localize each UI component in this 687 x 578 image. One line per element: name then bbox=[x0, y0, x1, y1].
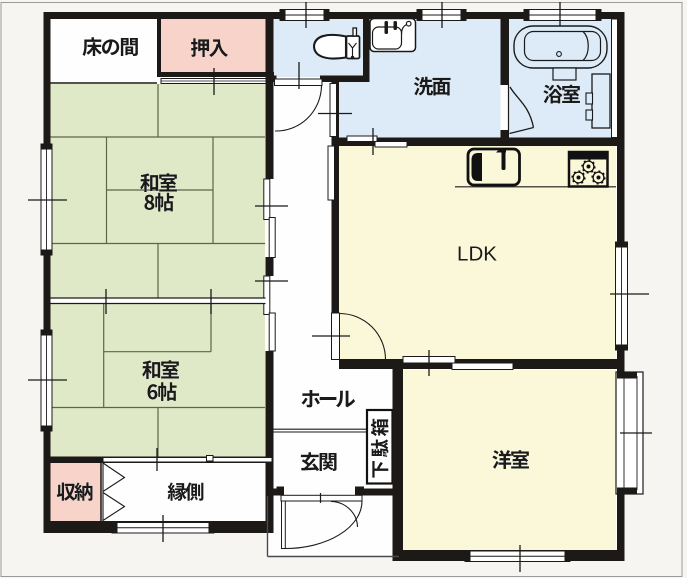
svg-text:LDK: LDK bbox=[457, 243, 497, 266]
